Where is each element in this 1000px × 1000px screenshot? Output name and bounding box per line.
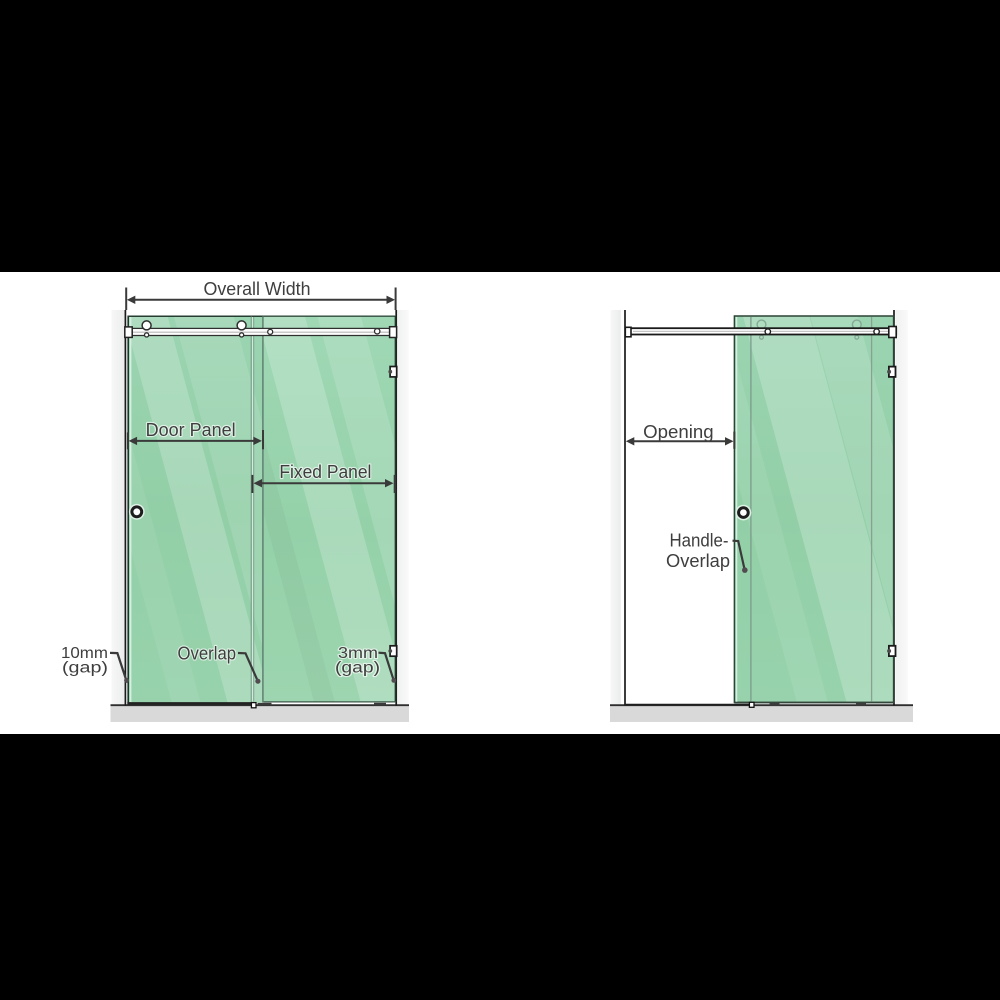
svg-text:Overlap: Overlap	[666, 551, 730, 571]
svg-text:(gap): (gap)	[62, 660, 108, 677]
svg-text:Handle-: Handle-	[670, 531, 729, 551]
svg-text:Door Panel: Door Panel	[146, 420, 236, 440]
svg-text:(gap): (gap)	[335, 660, 380, 677]
svg-text:Fixed Panel: Fixed Panel	[279, 462, 371, 482]
svg-text:Opening: Opening	[643, 422, 714, 442]
svg-text:Overall Width: Overall Width	[204, 278, 311, 299]
svg-text:Overlap: Overlap	[178, 642, 237, 663]
